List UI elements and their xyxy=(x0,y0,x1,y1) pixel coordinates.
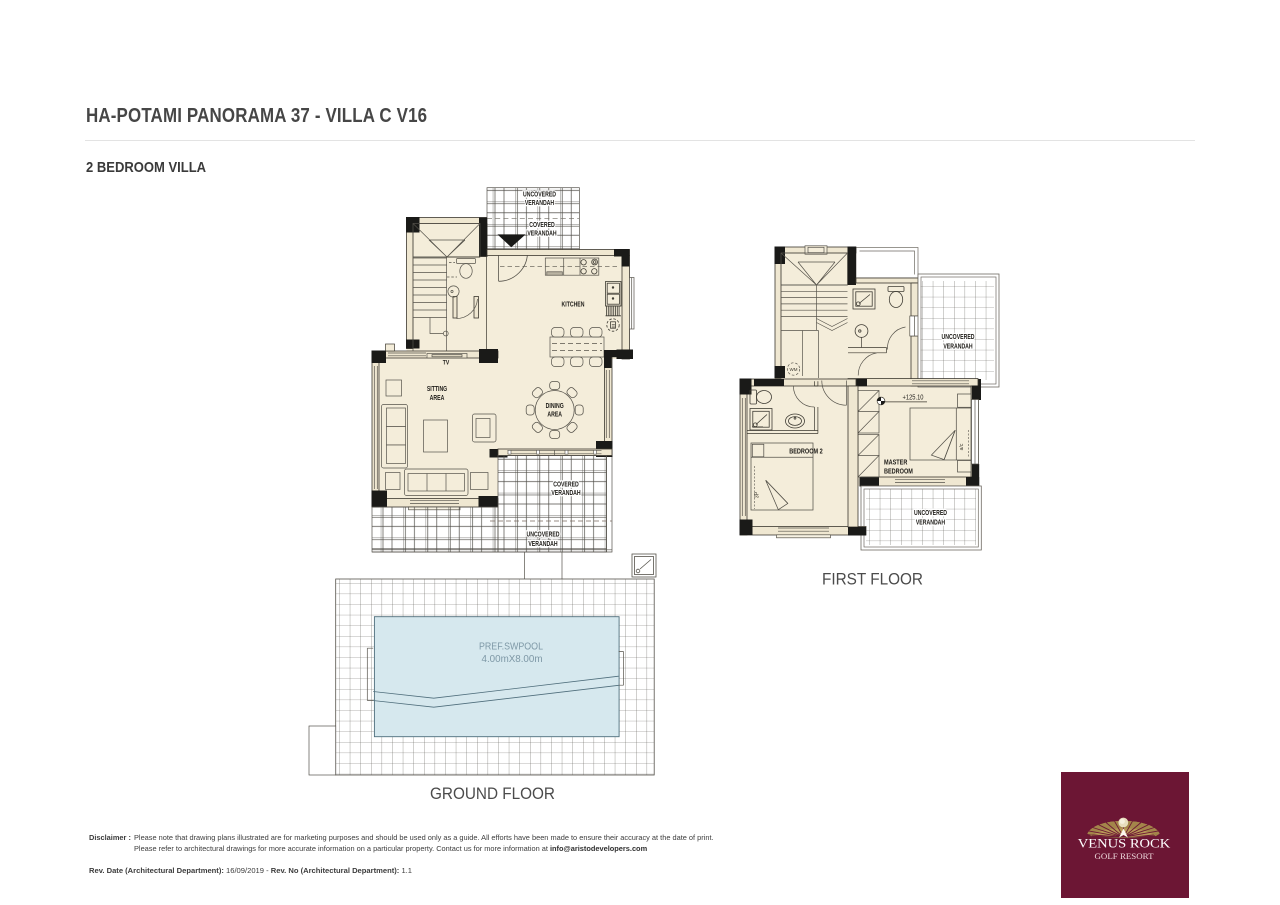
svg-text:AREA: AREA xyxy=(547,411,562,419)
svg-text:UNCOVERED: UNCOVERED xyxy=(523,191,556,199)
svg-text:VERANDAH: VERANDAH xyxy=(527,230,557,238)
svg-text:KITCHEN: KITCHEN xyxy=(562,301,585,309)
svg-text:4.00mX8.00m: 4.00mX8.00m xyxy=(482,653,543,665)
svg-text:GOLF RESORT: GOLF RESORT xyxy=(1095,851,1155,861)
svg-text:VERANDAH: VERANDAH xyxy=(551,489,581,497)
svg-text:UNCOVERED: UNCOVERED xyxy=(526,531,559,539)
svg-text:COVERED: COVERED xyxy=(553,481,579,489)
svg-text:MASTER: MASTER xyxy=(884,459,908,467)
svg-text:3P: 3P xyxy=(755,491,761,498)
svg-text:UNCOVERED: UNCOVERED xyxy=(914,509,947,517)
svg-text:SITTING: SITTING xyxy=(427,385,448,393)
svg-text:a/c: a/c xyxy=(959,443,965,450)
svg-text:BEDROOM: BEDROOM xyxy=(884,468,913,476)
svg-text:VERANDAH: VERANDAH xyxy=(916,519,946,527)
svg-text:BEDROOM 2: BEDROOM 2 xyxy=(789,448,823,456)
svg-text:FIRST FLOOR: FIRST FLOOR xyxy=(822,571,923,589)
svg-text:COVERED: COVERED xyxy=(529,221,555,229)
svg-text:DINING: DINING xyxy=(546,402,564,410)
svg-text:PREF.SWPOOL: PREF.SWPOOL xyxy=(479,641,543,653)
svg-text:TV: TV xyxy=(443,360,450,367)
svg-text:VENUS ROCK: VENUS ROCK xyxy=(1078,836,1171,851)
svg-text:AREA: AREA xyxy=(430,394,445,402)
svg-text:GROUND FLOOR: GROUND FLOOR xyxy=(430,785,555,803)
svg-text:WM: WM xyxy=(790,367,798,372)
svg-text:UNCOVERED: UNCOVERED xyxy=(941,333,974,341)
svg-text:VERANDAH: VERANDAH xyxy=(525,199,555,207)
svg-text:VERANDAH: VERANDAH xyxy=(528,540,558,548)
svg-text:+125.10: +125.10 xyxy=(903,394,924,402)
svg-text:VERANDAH: VERANDAH xyxy=(943,343,973,351)
